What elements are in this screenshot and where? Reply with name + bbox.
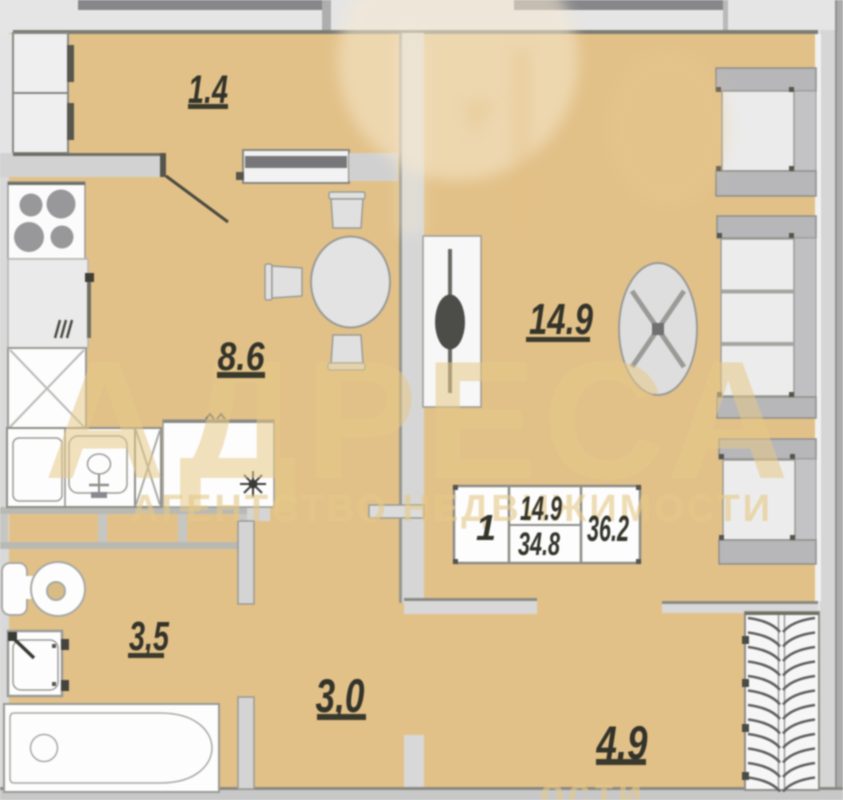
svg-text:14.9: 14.9 [520, 490, 562, 528]
svg-text:АДРЕСА: АДРЕСА [44, 326, 796, 514]
svg-text:14.9: 14.9 [529, 295, 593, 344]
svg-text:34.8: 34.8 [518, 526, 560, 562]
svg-text:36.2: 36.2 [587, 508, 629, 549]
svg-text:1: 1 [476, 507, 496, 548]
svg-text:АГЕНТСТВО НЕДВИЖИМОСТИ: АГЕНТСТВО НЕДВИЖИМОСТИ [131, 488, 773, 530]
svg-text:ости: ости [540, 771, 646, 800]
svg-text:3,5: 3,5 [129, 613, 170, 659]
